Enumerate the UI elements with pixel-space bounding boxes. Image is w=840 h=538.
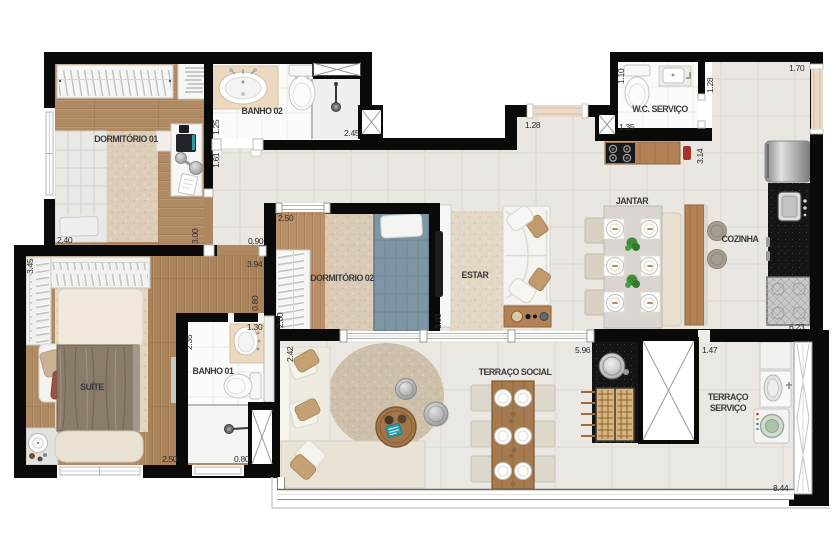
svg-text:1.10: 1.10 [616, 68, 626, 84]
svg-text:5.96: 5.96 [575, 345, 591, 355]
svg-text:SUÍTE: SUÍTE [80, 382, 104, 392]
svg-text:ESTAR: ESTAR [462, 270, 490, 280]
svg-text:0.80: 0.80 [250, 295, 260, 311]
svg-text:2.40: 2.40 [57, 235, 73, 245]
svg-text:2.35: 2.35 [184, 334, 194, 350]
svg-text:3.45: 3.45 [25, 258, 35, 274]
svg-text:1.28: 1.28 [705, 77, 715, 93]
svg-text:1.30: 1.30 [247, 322, 263, 332]
svg-text:1.35: 1.35 [619, 122, 635, 132]
svg-text:0.80: 0.80 [234, 454, 250, 464]
svg-text:TERRAÇO SOCIAL: TERRAÇO SOCIAL [479, 367, 553, 377]
svg-text:2.50: 2.50 [162, 454, 178, 464]
svg-text:1.47: 1.47 [702, 345, 718, 355]
svg-text:JANTAR: JANTAR [616, 196, 649, 206]
svg-text:BANHO 01: BANHO 01 [193, 366, 234, 376]
svg-text:W.C. SERVIÇO: W.C. SERVIÇO [632, 104, 688, 114]
svg-text:3.14: 3.14 [695, 148, 705, 164]
svg-text:3.94: 3.94 [247, 259, 263, 269]
svg-text:1.70: 1.70 [789, 63, 805, 73]
svg-text:2.45: 2.45 [344, 128, 360, 138]
svg-text:0.90: 0.90 [248, 236, 264, 246]
svg-text:DORMITÓRIO 01: DORMITÓRIO 01 [94, 133, 158, 144]
svg-text:6.23: 6.23 [789, 322, 805, 332]
svg-text:1.61: 1.61 [211, 152, 221, 168]
svg-text:DORMITÓRIO 02: DORMITÓRIO 02 [310, 272, 374, 283]
svg-text:SERVIÇO: SERVIÇO [710, 403, 747, 413]
svg-text:2.50: 2.50 [278, 213, 294, 223]
svg-text:3.00: 3.00 [190, 228, 200, 244]
svg-text:1.28: 1.28 [525, 120, 541, 130]
svg-text:2.42: 2.42 [285, 346, 295, 362]
svg-text:3.03: 3.03 [433, 313, 443, 329]
svg-text:2.00: 2.00 [275, 312, 285, 328]
svg-text:1.25: 1.25 [211, 119, 221, 135]
svg-text:TERRAÇO: TERRAÇO [708, 392, 749, 402]
svg-text:COZINHA: COZINHA [722, 234, 760, 244]
svg-text:BANHO 02: BANHO 02 [242, 106, 283, 116]
svg-text:8.44: 8.44 [773, 483, 789, 493]
